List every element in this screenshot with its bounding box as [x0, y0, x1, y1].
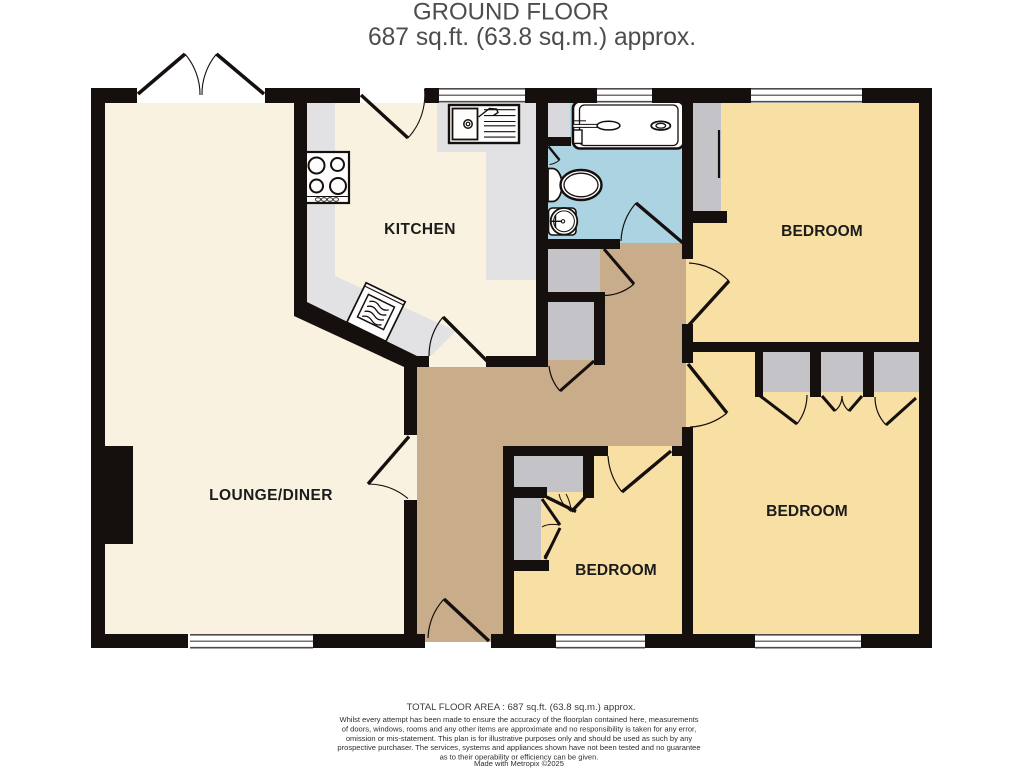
svg-text:BEDROOM: BEDROOM: [766, 503, 848, 520]
svg-text:KITCHEN: KITCHEN: [384, 221, 456, 238]
svg-text:omission or mis-statement. Thi: omission or mis-statement. This plan is …: [346, 734, 693, 743]
svg-text:GROUND FLOOR: GROUND FLOOR: [413, 0, 609, 26]
svg-text:LOUNGE/DINER: LOUNGE/DINER: [209, 487, 333, 504]
svg-text:BEDROOM: BEDROOM: [781, 223, 863, 240]
svg-text:Made with Metropix ©2025: Made with Metropix ©2025: [474, 759, 564, 768]
svg-text:prospective purchaser. The ser: prospective purchaser. The services, sys…: [337, 743, 700, 752]
svg-text:687 sq.ft. (63.8 sq.m.) approx: 687 sq.ft. (63.8 sq.m.) approx.: [368, 24, 696, 51]
svg-text:TOTAL FLOOR AREA : 687 sq.ft.: TOTAL FLOOR AREA : 687 sq.ft. (63.8 sq.m…: [406, 702, 635, 713]
svg-text:Whilst every attempt has been: Whilst every attempt has been made to en…: [339, 715, 698, 724]
svg-text:of doors, windows, rooms and a: of doors, windows, rooms and any other i…: [342, 724, 696, 733]
svg-text:BEDROOM: BEDROOM: [575, 562, 657, 579]
